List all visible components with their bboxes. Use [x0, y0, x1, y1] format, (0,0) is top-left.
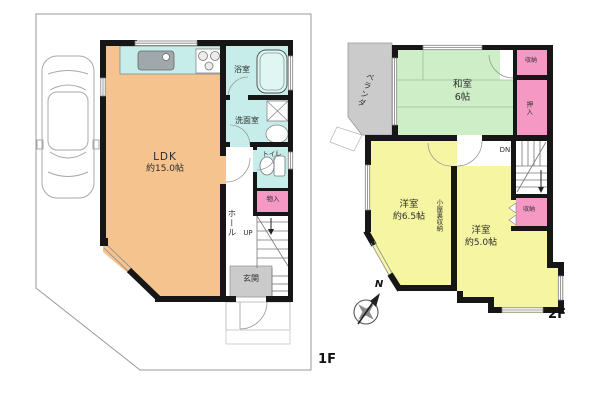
toilet-label: トイレ [254, 151, 290, 158]
western2-label: 洋室 [445, 226, 517, 236]
bath-label: 浴室 [222, 66, 262, 74]
storage-1f-label: 物入 [255, 196, 291, 203]
stairs-down-label: DN [494, 147, 516, 154]
washbasin-icon [266, 125, 288, 143]
compass-north-label: N [371, 280, 387, 291]
stairs-up-label: UP [236, 230, 260, 237]
closet-lower-label: 収納 [513, 207, 545, 213]
washroom-label: 洗面室 [222, 117, 272, 125]
ldk-size-label: 約15.0帖 [120, 165, 210, 174]
floor2-label: 2F [540, 308, 574, 322]
entrance-label: 玄関 [231, 275, 271, 283]
ldk-label: LDK [120, 152, 210, 163]
western2-size-label: 約5.0帖 [445, 239, 517, 248]
closet-upper-label: 収納 [515, 58, 547, 64]
kitchen-sink-icon [138, 51, 174, 70]
floorplan-page: LDK 約15.0帖 浴室 洗面室 トイレ 物入 ホール UP 玄関 1F ベラ… [0, 0, 600, 405]
oshiire-label: 押入 [525, 93, 532, 123]
veranda-lower-edge [330, 127, 362, 151]
floorplan-drawing [0, 0, 600, 405]
compass-rose [350, 293, 381, 328]
kitchen-counter [120, 46, 223, 74]
hall-label: ホール [226, 197, 235, 249]
floor1-label: 1F [310, 353, 344, 367]
attic-storage-label: 小屋裏収納 [435, 176, 442, 254]
washitsu-label: 和室 [425, 80, 500, 90]
washitsu-size-label: 6帖 [425, 93, 500, 103]
